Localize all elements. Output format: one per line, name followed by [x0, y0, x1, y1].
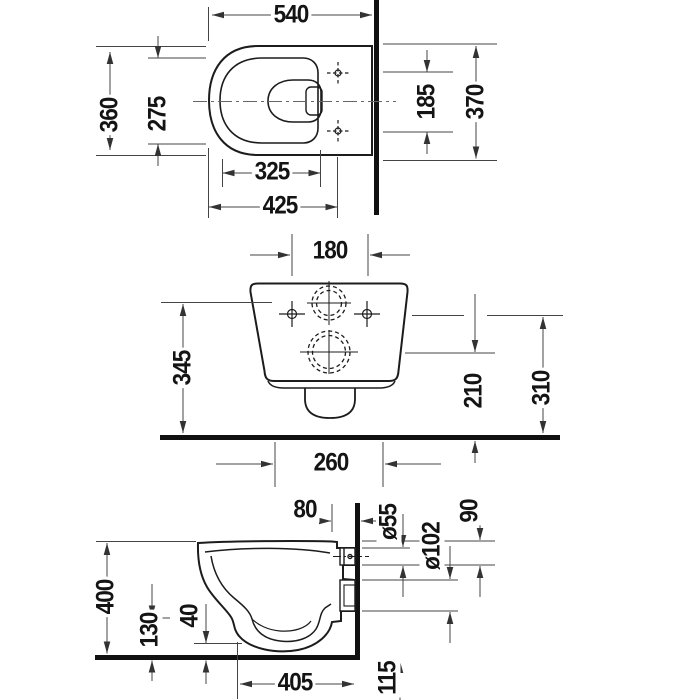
- plan-wall-bar: [374, 0, 379, 215]
- side-outlet-stub: [340, 580, 355, 611]
- dim-front-hole-spacing: 180: [310, 239, 350, 264]
- dim-side-holes-to-wall: 80: [291, 498, 320, 523]
- front-outlet-circle: [300, 330, 358, 374]
- front-fixing-hole-left: [279, 301, 305, 327]
- plan-bowl-outline: [209, 46, 372, 155]
- dim-plan-front-to-holes: 425: [260, 194, 300, 219]
- front-body-lip: [268, 381, 395, 388]
- dim-plan-rim-depth: 325: [252, 160, 292, 185]
- dim-front-base-width: 260: [311, 451, 351, 476]
- dim-side-top-to-inlet: 90: [458, 497, 483, 526]
- plan-fixing-hole-top: [327, 62, 349, 84]
- dim-side-wall-to-front-lower: 405: [275, 671, 315, 696]
- dim-plan-overall-depth: 540: [271, 3, 311, 28]
- dim-front-inlet-height: 345: [171, 348, 196, 388]
- dim-front-outlet-height: 210: [462, 371, 487, 411]
- dim-side-inlet-diameter: ø55: [377, 501, 402, 542]
- side-bowl-inner: [211, 556, 331, 641]
- front-fixing-hole-right: [354, 301, 380, 327]
- dim-plan-overall-width: 360: [98, 95, 123, 135]
- dimension-drawing: 540 360 275 185 370 325 425 180 345 210 …: [0, 0, 700, 700]
- front-inlet-circle: [307, 281, 351, 325]
- front-floor-bar: [160, 435, 560, 440]
- dim-side-bottom-clearance: 40: [178, 602, 203, 631]
- side-floor-bar: [95, 655, 360, 660]
- dim-plan-rim-width: 275: [146, 94, 171, 134]
- dim-side-front-edge-height: 130: [138, 610, 163, 650]
- side-trap-line: [252, 619, 311, 631]
- plan-fixing-hole-bottom: [327, 120, 349, 142]
- front-view: [160, 234, 563, 487]
- dim-front-hole-height: 310: [530, 368, 555, 408]
- front-outlet-tongue: [305, 388, 355, 418]
- side-inlet-stub: [333, 548, 369, 565]
- side-body-outline: [198, 541, 355, 651]
- dim-plan-hole-spacing: 185: [415, 82, 440, 122]
- dim-side-outlet-diameter: ø102: [420, 519, 445, 572]
- dim-plan-seat-width: 370: [464, 82, 489, 122]
- plan-seat-ring: [220, 58, 318, 143]
- dim-side-below-floor: 115: [376, 658, 401, 697]
- side-seat-line: [205, 548, 330, 553]
- front-dimension-lines: [161, 234, 563, 487]
- dim-side-overall-height: 400: [94, 577, 119, 617]
